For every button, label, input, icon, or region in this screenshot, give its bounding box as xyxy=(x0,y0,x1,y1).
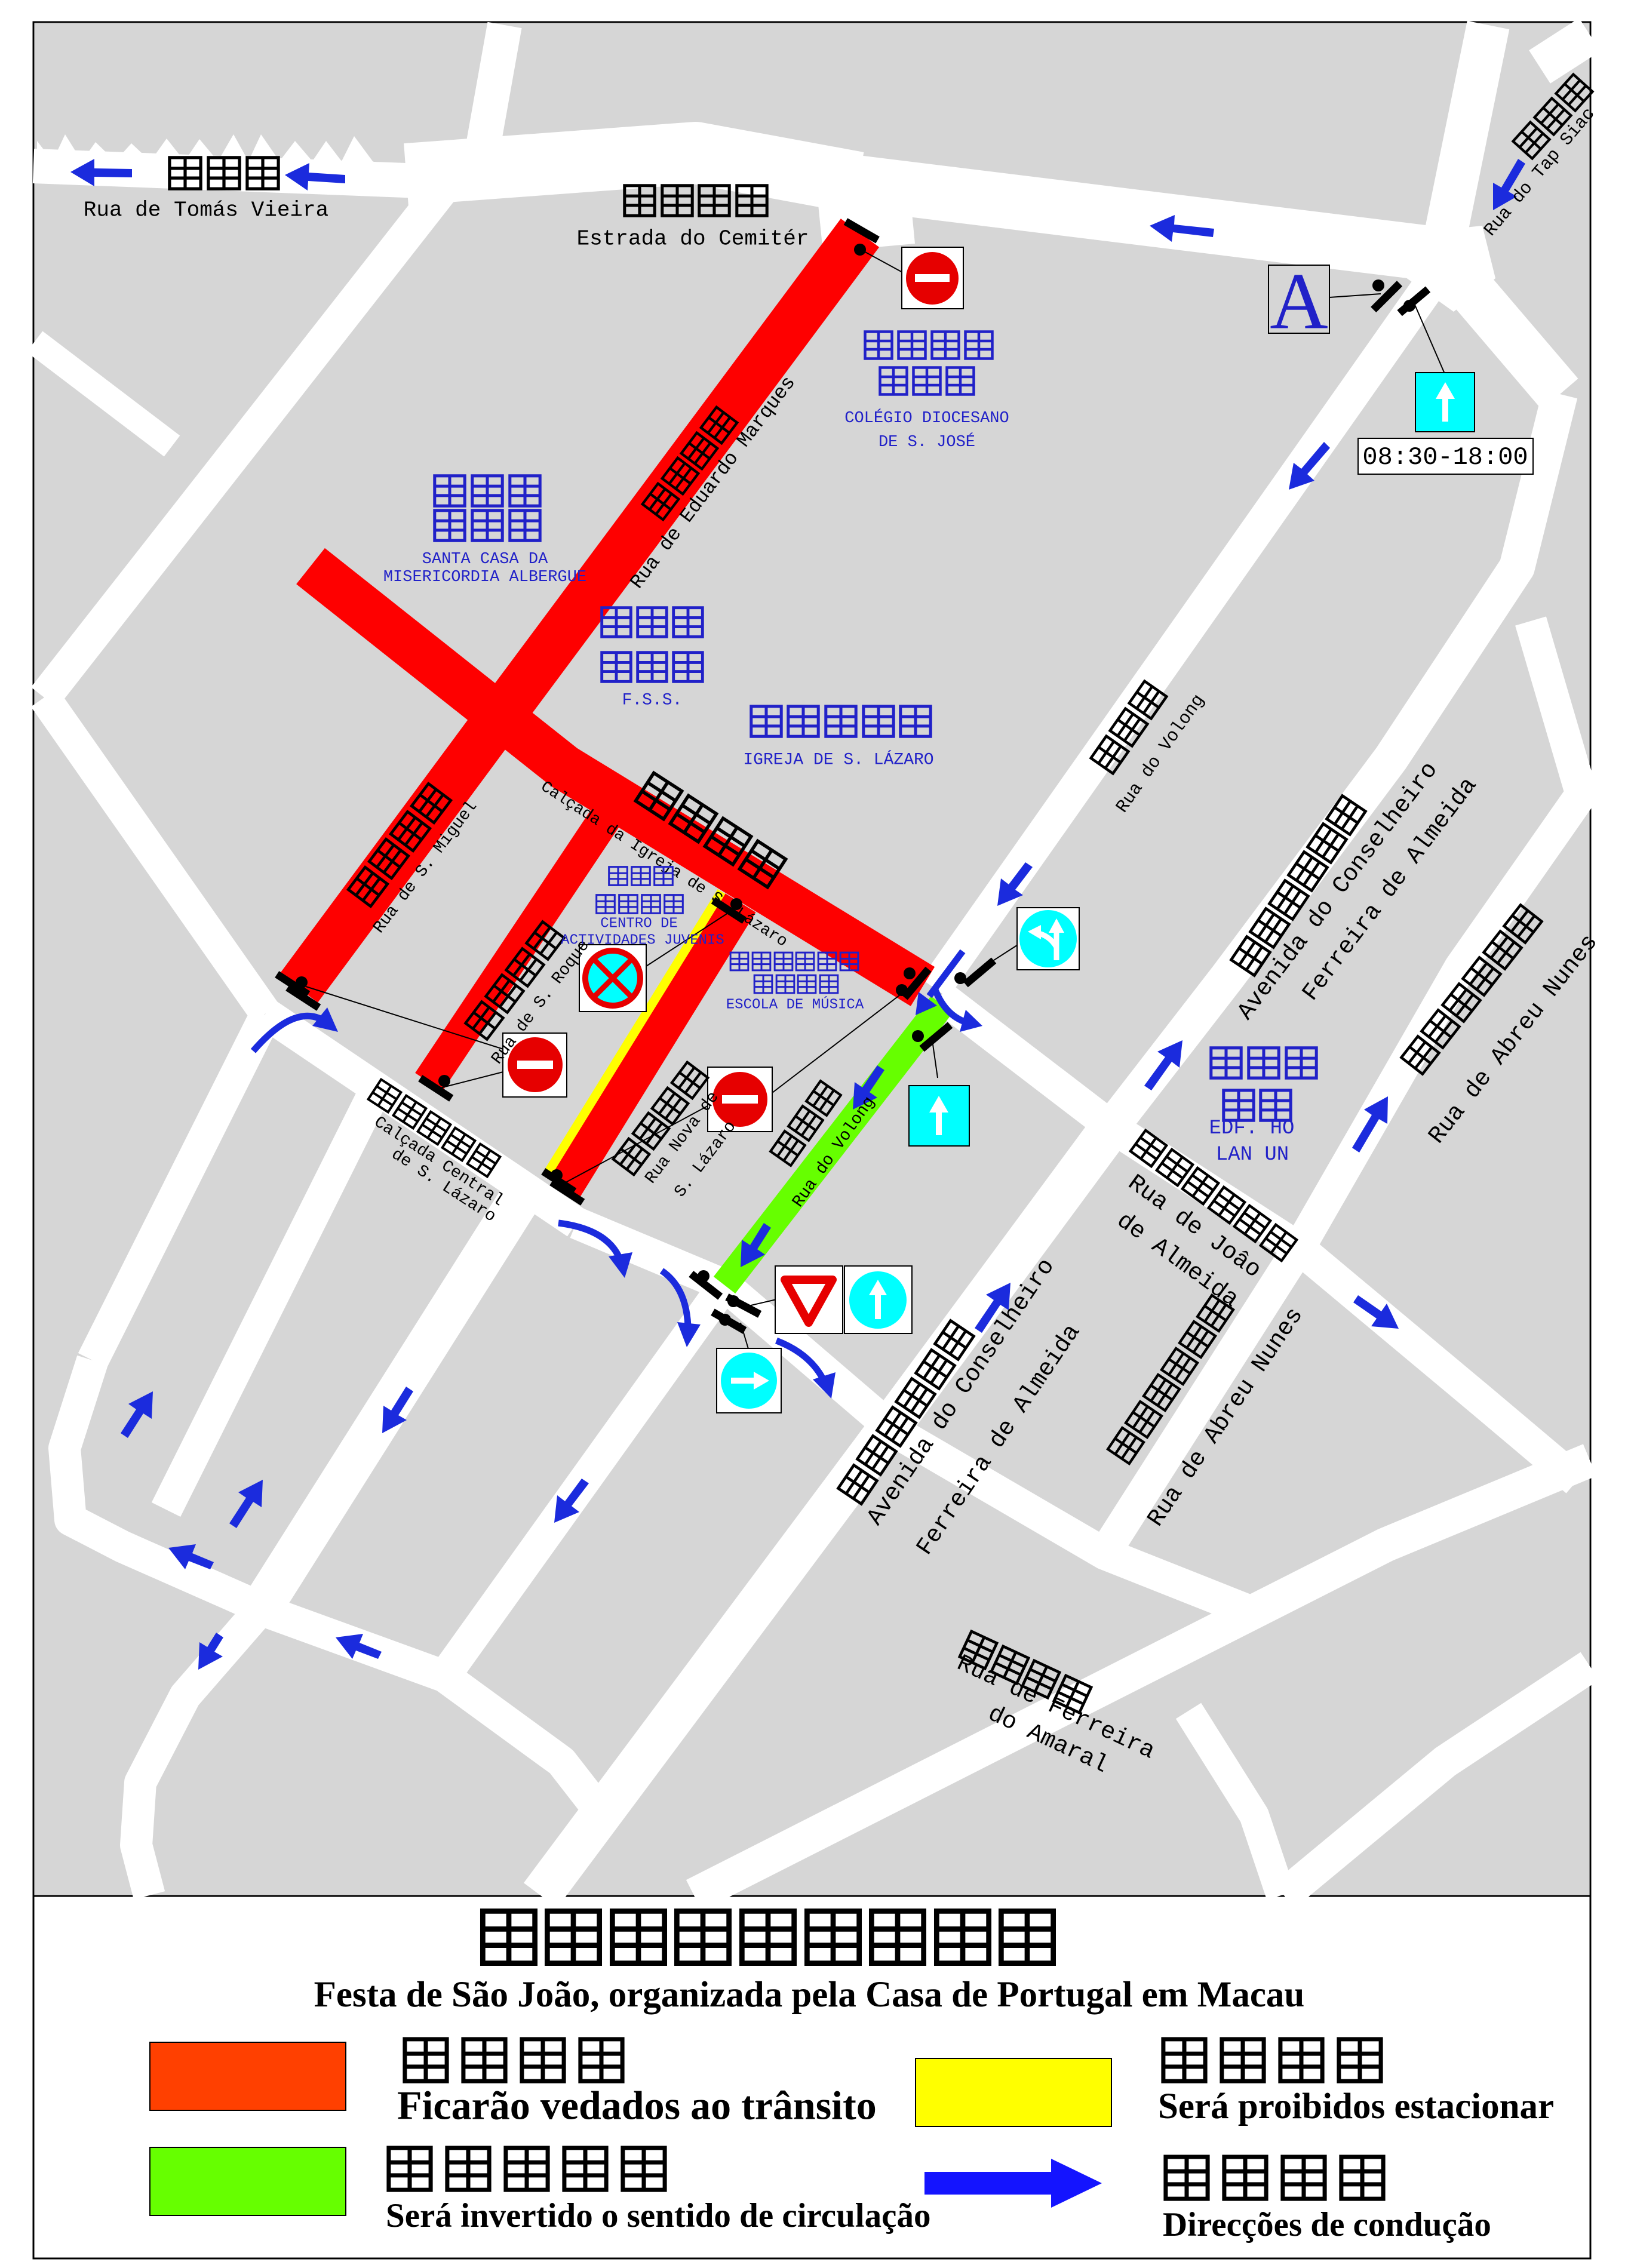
svg-text:SANTA CASA DA: SANTA CASA DA xyxy=(422,551,548,568)
svg-text:Ficarão vedados ao trânsito: Ficarão vedados ao trânsito xyxy=(397,2083,877,2128)
svg-text:EDF. HO: EDF. HO xyxy=(1209,1117,1295,1140)
svg-text:ESCOLA DE MÚSICA: ESCOLA DE MÚSICA xyxy=(726,995,864,1013)
svg-text:08:30-18:00: 08:30-18:00 xyxy=(1362,443,1528,472)
svg-text:CENTRO DE: CENTRO DE xyxy=(600,915,678,932)
svg-text:Direcções de condução: Direcções de condução xyxy=(1163,2206,1491,2244)
svg-text:Será proibidos estacionar: Será proibidos estacionar xyxy=(1158,2086,1554,2126)
svg-text:IGREJA DE S. LÁZARO: IGREJA DE S. LÁZARO xyxy=(743,750,933,769)
svg-text:Estrada do Cemitér: Estrada do Cemitér xyxy=(577,227,809,251)
svg-text:COLÉGIO DIOCESANO: COLÉGIO DIOCESANO xyxy=(844,408,1009,428)
svg-text:F.S.S.: F.S.S. xyxy=(622,691,683,709)
svg-text:Festa de São João, organizada: Festa de São João, organizada pela Casa … xyxy=(314,1975,1305,2015)
svg-text:Será invertido o sentido de ci: Será invertido o sentido de circulação xyxy=(386,2197,930,2235)
svg-text:A: A xyxy=(1270,257,1328,346)
svg-text:DE S. JOSÉ: DE S. JOSÉ xyxy=(879,432,975,451)
svg-text:ACTIVIDADES JUVENIS: ACTIVIDADES JUVENIS xyxy=(561,932,724,948)
svg-text:LAN UN: LAN UN xyxy=(1216,1144,1289,1166)
svg-text:MISERICORDIA ALBERGUE: MISERICORDIA ALBERGUE xyxy=(383,568,586,586)
svg-text:Rua de Tomás Vieira: Rua de Tomás Vieira xyxy=(84,198,328,223)
